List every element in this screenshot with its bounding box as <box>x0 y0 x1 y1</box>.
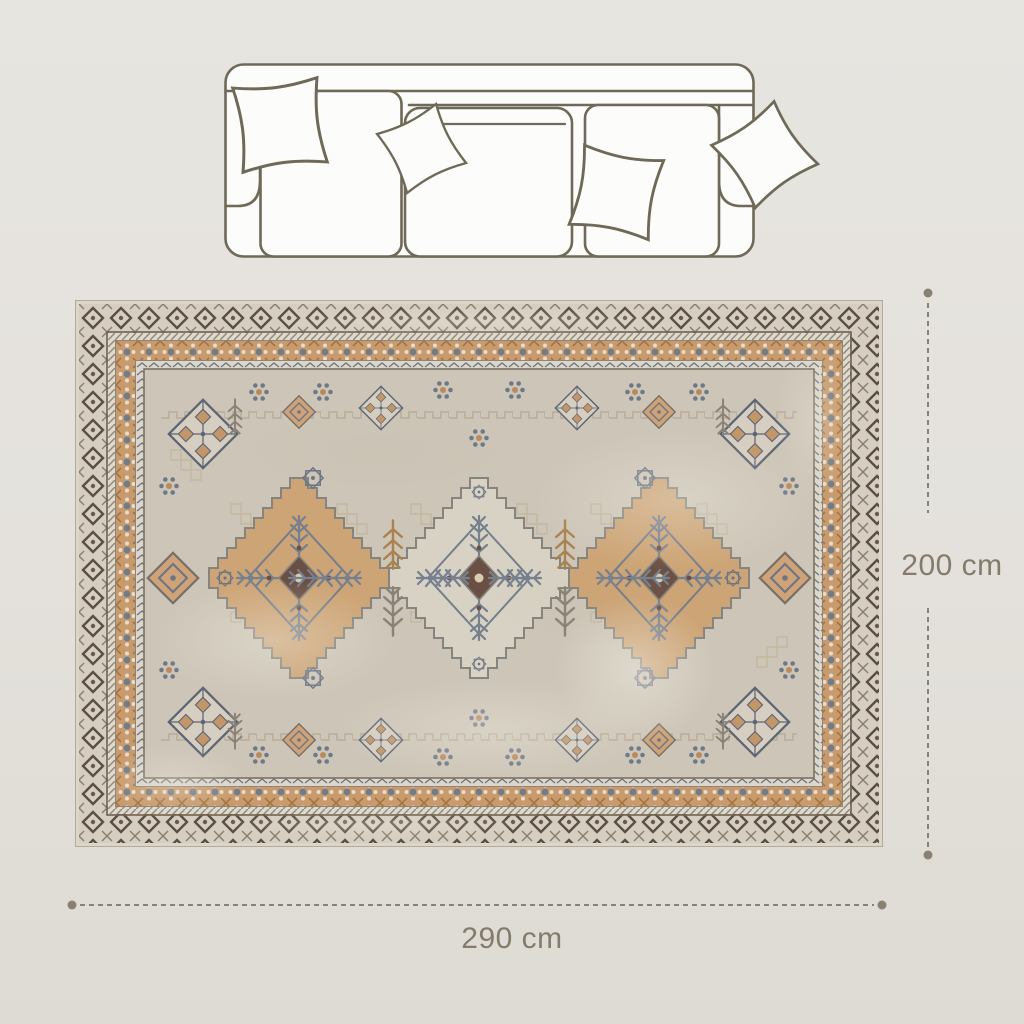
dimension-endpoint-dot <box>924 289 933 298</box>
width-dimension-line <box>62 895 892 915</box>
height-dimension-label: 200 cm <box>872 549 1024 583</box>
dimension-endpoint-dot <box>68 901 77 910</box>
sofa-top-view-icon <box>224 63 755 258</box>
width-dimension-label: 290 cm <box>432 922 592 956</box>
rug-product-image <box>75 300 883 847</box>
product-dimension-diagram: 200 cm 290 cm <box>0 0 1024 1024</box>
dimension-endpoint-dot <box>924 851 933 860</box>
dimension-endpoint-dot <box>878 901 887 910</box>
